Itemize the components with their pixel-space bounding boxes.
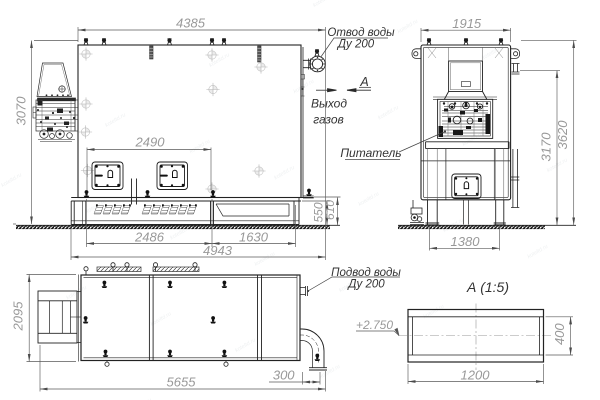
svg-text:Подвод воды: Подвод воды: [331, 267, 401, 279]
svg-text:Питатель: Питатель: [340, 146, 401, 160]
svg-text:Выход: Выход: [311, 97, 347, 111]
svg-text:1915: 1915: [452, 16, 482, 31]
svg-text:+2.750: +2.750: [356, 318, 393, 332]
svg-text:Отвод воды: Отвод воды: [327, 27, 395, 39]
svg-text:1630: 1630: [239, 230, 269, 245]
svg-text:3620: 3620: [555, 120, 570, 150]
svg-text:3070: 3070: [14, 96, 29, 126]
svg-text:3170: 3170: [539, 132, 554, 162]
svg-text:1380: 1380: [451, 234, 481, 249]
svg-text:2486: 2486: [134, 230, 165, 245]
svg-text:2490: 2490: [135, 135, 166, 150]
svg-text:4385: 4385: [176, 16, 206, 31]
svg-text:5655: 5655: [167, 375, 197, 390]
svg-text:400: 400: [552, 323, 567, 345]
svg-text:610: 610: [323, 200, 337, 220]
svg-text:4943: 4943: [203, 243, 233, 258]
svg-text:газов: газов: [313, 113, 344, 127]
svg-text:2095: 2095: [11, 301, 26, 332]
svg-text:300: 300: [273, 368, 295, 383]
svg-text:А (1:5): А (1:5): [466, 279, 509, 295]
svg-text:Ду 200: Ду 200: [336, 39, 375, 51]
svg-text:Ду 200: Ду 200: [346, 279, 385, 291]
svg-text:1200: 1200: [461, 368, 491, 383]
svg-text:А: А: [359, 75, 368, 89]
